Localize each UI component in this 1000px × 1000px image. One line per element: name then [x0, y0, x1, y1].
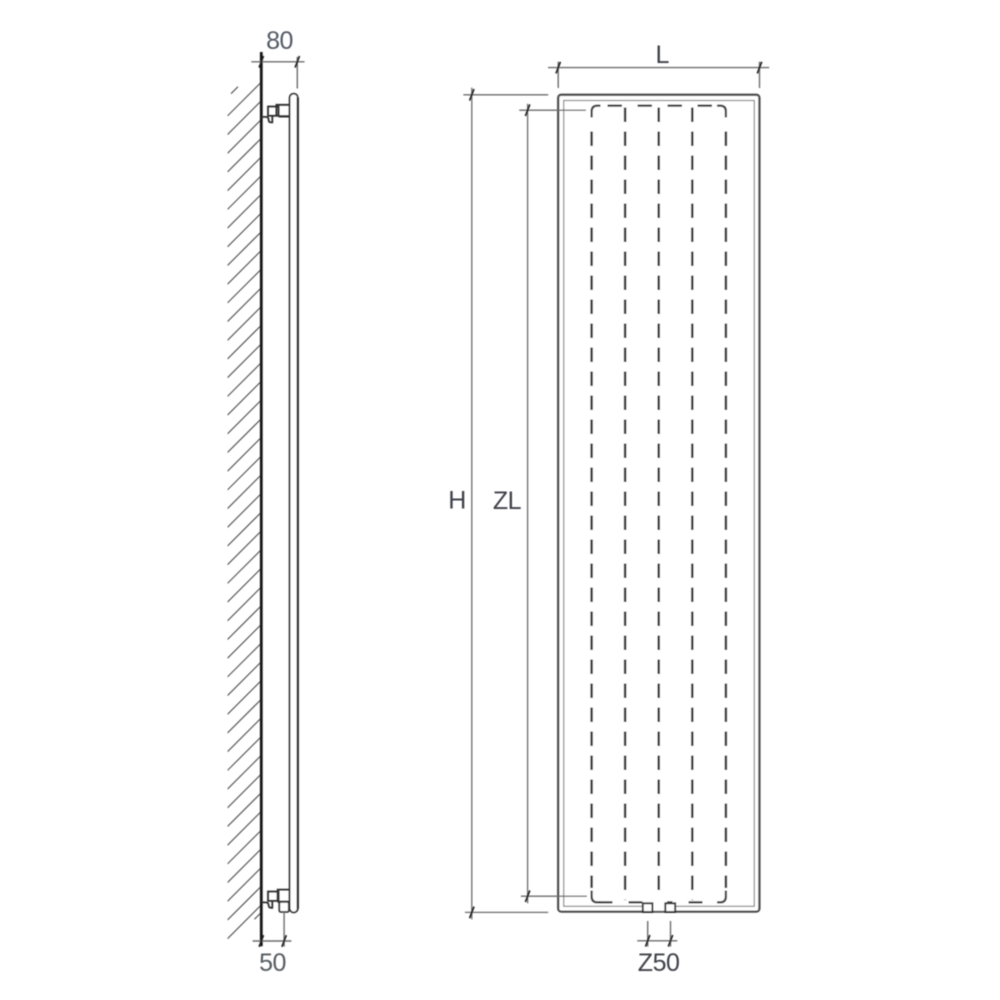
svg-text:L: L: [655, 41, 669, 69]
svg-text:80: 80: [266, 27, 293, 55]
svg-text:ZL: ZL: [493, 487, 522, 515]
svg-text:50: 50: [259, 949, 286, 977]
svg-text:H: H: [448, 487, 466, 515]
svg-text:Z50: Z50: [638, 949, 680, 977]
